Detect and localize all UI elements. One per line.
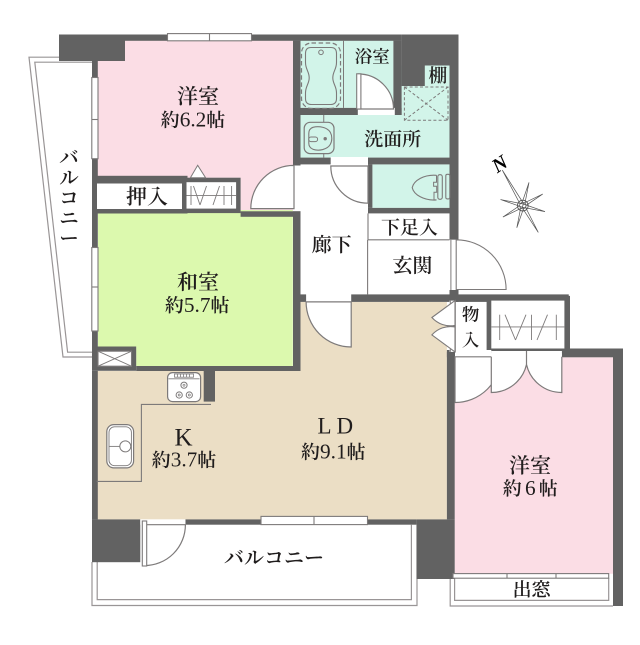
- svg-text:6.2: 6.2: [180, 108, 207, 132]
- svg-text:L D: L D: [318, 414, 354, 439]
- svg-text:5.7: 5.7: [184, 293, 211, 317]
- svg-text:3.7: 3.7: [171, 448, 198, 472]
- svg-text:9.1: 9.1: [320, 440, 347, 464]
- svg-text:6: 6: [525, 476, 536, 500]
